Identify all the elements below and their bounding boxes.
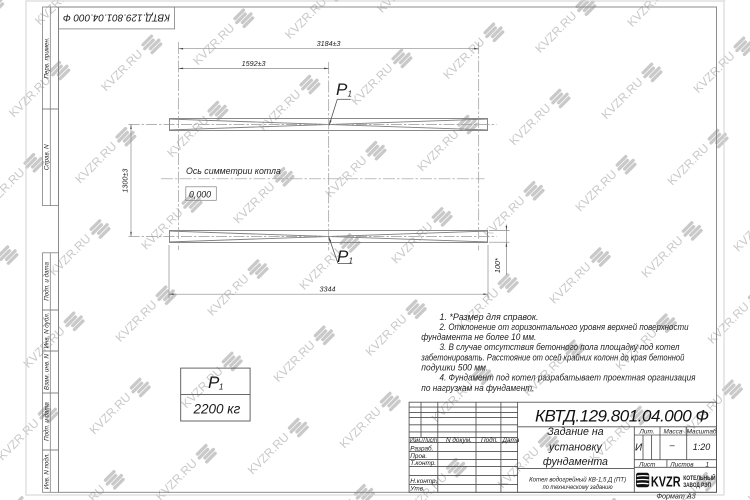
svg-text:КВТД.129.801.04.000 Ф: КВТД.129.801.04.000 Ф bbox=[535, 406, 709, 425]
svg-text:Масса: Масса bbox=[663, 429, 682, 436]
svg-text:0,000: 0,000 bbox=[189, 190, 211, 200]
svg-text:Дата: Дата bbox=[502, 437, 520, 444]
svg-text:установку: установку bbox=[548, 442, 602, 454]
svg-text:P: P bbox=[336, 80, 348, 99]
svg-text:–: – bbox=[669, 440, 676, 450]
svg-text:2200 кг: 2200 кг bbox=[193, 402, 241, 417]
svg-text:по техническому заданию: по техническому заданию bbox=[543, 483, 613, 491]
svg-text:Справ. N: Справ. N bbox=[43, 144, 50, 170]
svg-text:1:20: 1:20 bbox=[693, 442, 711, 452]
svg-text:по нагрузкам на фундамент.: по нагрузкам на фундамент. bbox=[421, 383, 534, 393]
svg-text:Пров.: Пров. bbox=[410, 453, 427, 460]
svg-text:Перв. примен.: Перв. примен. bbox=[43, 37, 50, 78]
svg-text:Инв. N подл.: Инв. N подл. bbox=[43, 453, 50, 489]
svg-text:забетонировать. Расстояние о: забетонировать. Расстояние от осей крайн… bbox=[420, 352, 684, 362]
svg-text:Изм./Лист: Изм./Лист bbox=[410, 437, 438, 444]
svg-text:Масштаб: Масштаб bbox=[687, 428, 717, 436]
svg-text:КОТЕЛЬНЫЙ: КОТЕЛЬНЫЙ bbox=[683, 474, 715, 482]
svg-text:1: 1 bbox=[706, 461, 710, 468]
svg-text:1: 1 bbox=[219, 383, 223, 392]
svg-text:2. Отклонение от горизонтал: 2. Отклонение от горизонтального уровня … bbox=[439, 322, 689, 332]
svg-text:Взам. инв. N: Взам. инв. N bbox=[43, 353, 50, 390]
svg-text:1300±3: 1300±3 bbox=[120, 169, 129, 193]
svg-text:КВТД.129.801.04.000 Ф: КВТД.129.801.04.000 Ф bbox=[63, 11, 170, 22]
svg-text:Листов: Листов bbox=[669, 461, 694, 468]
svg-text:N докум.: N докум. bbox=[446, 436, 472, 444]
svg-text:1592±3: 1592±3 bbox=[242, 59, 266, 68]
svg-text:Котел водогрейный КВ-1,5 Д (ПТ: Котел водогрейный КВ-1,5 Д (ПТ) bbox=[529, 475, 626, 483]
svg-text:Ось симметрии котла: Ось симметрии котла bbox=[186, 166, 281, 176]
svg-text:Т.контр.: Т.контр. bbox=[410, 460, 436, 467]
svg-text:3. В случае отсутствия бет: 3. В случае отсутствия бетонного пола пл… bbox=[440, 342, 680, 352]
svg-text:Разраб.: Разраб. bbox=[410, 444, 433, 452]
svg-text:фундамента: фундамента bbox=[543, 456, 608, 468]
svg-text:100*: 100* bbox=[493, 258, 502, 273]
svg-text:Подп.: Подп. bbox=[481, 436, 498, 444]
svg-text:Утв.: Утв. bbox=[409, 485, 425, 492]
svg-text:ЗАВОД РЭП: ЗАВОД РЭП bbox=[683, 483, 711, 489]
svg-text:1: 1 bbox=[349, 257, 353, 266]
svg-text:подушки 500 мм.: подушки 500 мм. bbox=[421, 363, 488, 373]
svg-text:3184±3: 3184±3 bbox=[317, 39, 341, 48]
svg-text:Подп. и дата: Подп. и дата bbox=[43, 261, 50, 300]
svg-text:KVZR: KVZR bbox=[651, 475, 681, 491]
svg-text:Инв. N дубл.: Инв. N дубл. bbox=[43, 313, 50, 349]
svg-text:Формат А3: Формат А3 bbox=[656, 491, 695, 500]
svg-text:фундамента не более 10 мм.: фундамента не более 10 мм. bbox=[421, 332, 536, 342]
svg-text:4. Фундамент под котел раз: 4. Фундамент под котел разрабатывает про… bbox=[440, 373, 696, 383]
svg-text:Подп. и дата: Подп. и дата bbox=[43, 402, 50, 441]
svg-text:Лист: Лист bbox=[638, 461, 656, 468]
svg-text:1: 1 bbox=[348, 90, 352, 99]
svg-text:1. *Размер для справок.: 1. *Размер для справок. bbox=[440, 312, 539, 322]
svg-text:Лит.: Лит. bbox=[639, 429, 655, 436]
svg-text:3344: 3344 bbox=[320, 285, 336, 294]
svg-text:Н.контр.: Н.контр. bbox=[410, 478, 437, 485]
svg-text:Задание на: Задание на bbox=[547, 426, 604, 438]
svg-text:И: И bbox=[635, 443, 643, 454]
